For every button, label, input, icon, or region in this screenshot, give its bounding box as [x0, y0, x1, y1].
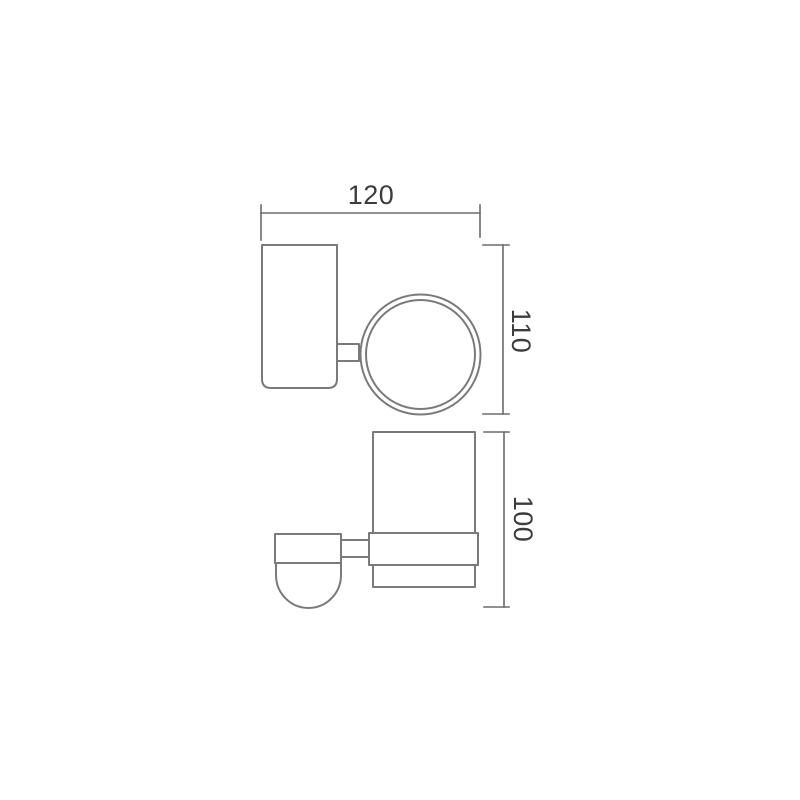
dim-width-label: 120 — [348, 180, 395, 210]
wall-bracket-plate — [275, 534, 341, 563]
dim-upper-height — [483, 245, 509, 414]
dim-lower-height-label: 100 — [508, 496, 538, 543]
holder-ring-outer-circle — [361, 295, 481, 415]
wall-plate-top-view — [262, 245, 337, 388]
tumbler-holder-dimension-drawing: 120 110 100 — [0, 0, 800, 800]
mounting-arm-top-view — [337, 344, 359, 361]
mounting-arm-front-view — [340, 540, 369, 557]
dim-lower-height — [484, 432, 509, 607]
dim-upper-height-label: 110 — [506, 309, 536, 354]
wall-bracket-dome — [276, 563, 341, 608]
technical-drawing-page: 120 110 100 — [0, 0, 800, 800]
dim-width — [261, 205, 480, 240]
top-view — [262, 245, 481, 415]
front-view — [275, 432, 478, 608]
holder-band-front-view — [369, 533, 478, 565]
